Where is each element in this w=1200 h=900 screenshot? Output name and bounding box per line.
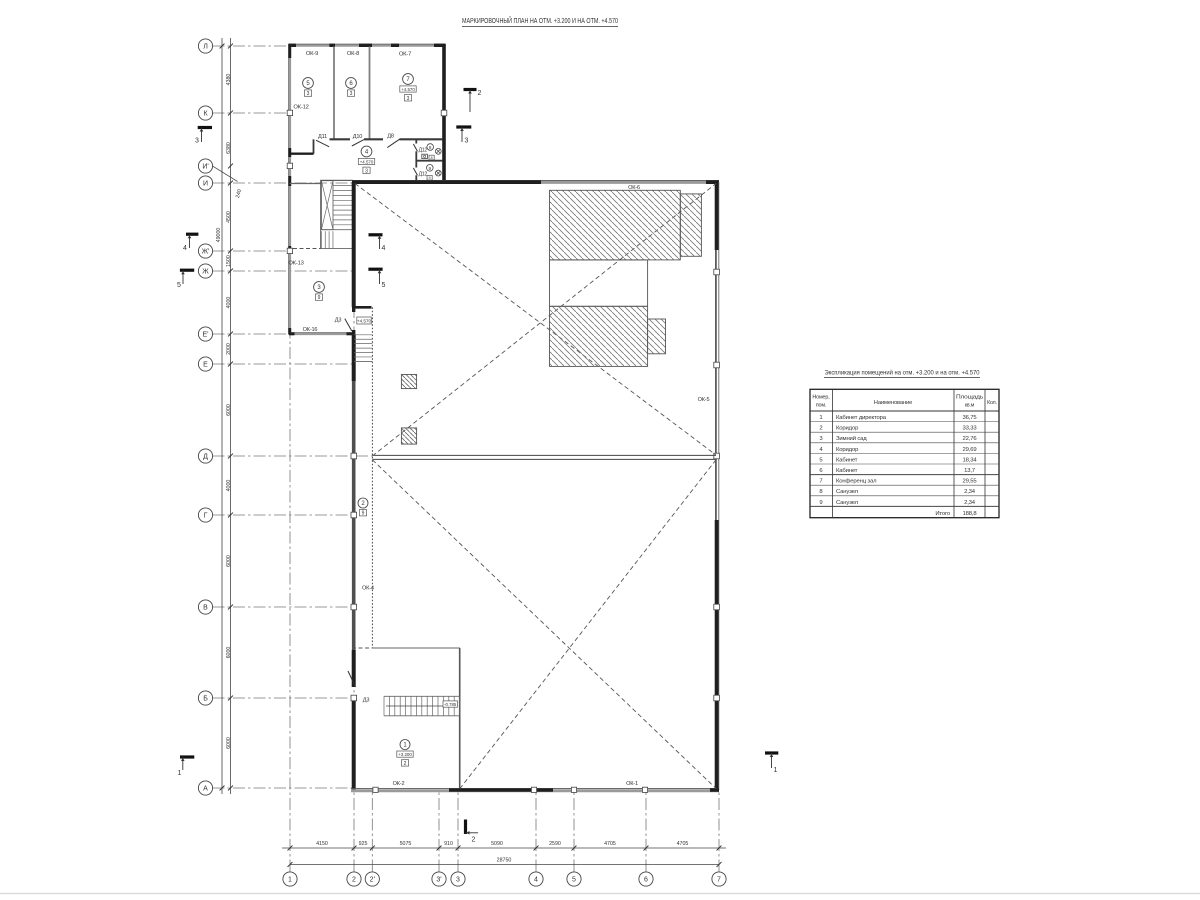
svg-text:Д11: Д11 (318, 134, 327, 140)
svg-text:Кол.: Кол. (987, 400, 997, 406)
svg-text:Коридор: Коридор (836, 426, 859, 432)
svg-text:9: 9 (819, 500, 822, 506)
svg-text:4: 4 (183, 245, 187, 252)
svg-text:Б: Б (203, 695, 208, 702)
svg-text:Коридор: Коридор (836, 447, 859, 453)
svg-text:4500: 4500 (226, 211, 232, 223)
svg-text:Кабинет: Кабинет (836, 457, 858, 463)
svg-text:2590: 2590 (549, 841, 561, 847)
svg-text:кв.м: кв.м (965, 403, 975, 409)
svg-text:Д3: Д3 (363, 698, 370, 704)
svg-text:1500: 1500 (226, 255, 232, 267)
svg-text:Наименование: Наименование (874, 400, 912, 406)
svg-text:Д8: Д8 (387, 133, 394, 139)
svg-text:9: 9 (429, 176, 431, 180)
svg-text:Экспликация помещений на отм.: Экспликация помещений на отм. +3.200 и н… (825, 369, 980, 377)
svg-text:4705: 4705 (604, 841, 616, 847)
svg-text:4: 4 (534, 876, 538, 883)
svg-text:Д: Д (203, 453, 208, 460)
svg-text:49000: 49000 (216, 228, 222, 243)
svg-text:МАРКИРОВОЧНЫЙ ПЛАН НА ОТМ. +3.: МАРКИРОВОЧНЫЙ ПЛАН НА ОТМ. +3.200 И НА О… (462, 16, 618, 25)
svg-text:2: 2 (478, 90, 482, 97)
svg-text:Кабинет: Кабинет (836, 468, 858, 474)
svg-text:4150: 4150 (316, 841, 328, 847)
svg-text:Д10: Д10 (353, 134, 362, 140)
svg-text:пом.: пом. (816, 403, 827, 409)
svg-text:+4.570: +4.570 (401, 87, 415, 92)
svg-text:6: 6 (644, 876, 648, 883)
svg-text:2: 2 (352, 876, 356, 883)
svg-text:5: 5 (177, 282, 181, 289)
svg-text:ОК-12: ОК-12 (293, 105, 308, 111)
svg-text:5090: 5090 (491, 841, 503, 847)
svg-text:2,34: 2,34 (964, 500, 976, 506)
svg-text:2: 2 (819, 426, 822, 432)
svg-text:Санузел: Санузел (836, 489, 859, 495)
svg-text:Е': Е' (202, 331, 208, 338)
svg-text:6380: 6380 (226, 142, 232, 154)
svg-text:6000: 6000 (226, 404, 232, 416)
svg-text:ОК-9: ОК-9 (306, 51, 318, 57)
svg-text:ОК-2: ОК-2 (393, 781, 405, 787)
svg-text:-0.785: -0.785 (444, 702, 457, 707)
svg-text:4000: 4000 (226, 480, 232, 492)
svg-text:2: 2 (404, 761, 407, 767)
svg-text:+4.570: +4.570 (360, 159, 374, 164)
svg-text:1: 1 (178, 770, 182, 777)
svg-text:18,34: 18,34 (963, 457, 978, 463)
svg-text:6000: 6000 (226, 737, 232, 749)
svg-text:3: 3 (350, 91, 353, 97)
svg-text:2,34: 2,34 (964, 489, 976, 495)
svg-text:28750: 28750 (497, 858, 512, 864)
svg-text:ОК-1: ОК-1 (626, 781, 638, 787)
svg-text:7: 7 (819, 479, 822, 485)
svg-text:2000: 2000 (226, 343, 232, 355)
svg-text:910: 910 (444, 841, 453, 847)
svg-text:+3.200: +3.200 (398, 752, 412, 757)
svg-text:3: 3 (365, 168, 368, 174)
svg-text:6000: 6000 (226, 555, 232, 567)
svg-text:+4.570: +4.570 (357, 319, 372, 324)
svg-text:13,7: 13,7 (964, 468, 975, 474)
svg-text:Ж': Ж' (202, 248, 210, 255)
svg-text:Д12: Д12 (419, 147, 428, 153)
svg-text:Площадь: Площадь (956, 395, 984, 401)
svg-text:7: 7 (717, 876, 721, 883)
svg-text:8: 8 (431, 156, 433, 160)
svg-text:Кабинет директора: Кабинет директора (836, 415, 887, 421)
svg-text:6000: 6000 (226, 647, 232, 659)
svg-text:ОК-13: ОК-13 (288, 261, 303, 267)
svg-text:ОК-16: ОК-16 (303, 327, 318, 333)
svg-text:33,33: 33,33 (963, 426, 978, 432)
svg-text:И': И' (202, 163, 208, 170)
svg-text:925: 925 (359, 841, 368, 847)
svg-text:5075: 5075 (400, 841, 412, 847)
svg-text:2': 2' (370, 876, 375, 883)
svg-text:2: 2 (472, 837, 476, 844)
svg-text:3: 3 (456, 876, 460, 883)
svg-text:Зимний сад: Зимний сад (836, 435, 867, 442)
svg-text:И: И (203, 180, 208, 187)
svg-text:22,76: 22,76 (963, 436, 978, 442)
svg-text:1: 1 (819, 415, 822, 421)
svg-text:1: 1 (774, 767, 778, 774)
svg-text:9: 9 (429, 166, 432, 171)
svg-text:ОК-5: ОК-5 (698, 397, 710, 403)
svg-text:3: 3 (307, 91, 310, 97)
svg-text:3: 3 (407, 96, 410, 102)
svg-text:188,8: 188,8 (963, 511, 978, 517)
svg-text:29,55: 29,55 (963, 479, 978, 485)
svg-text:Л: Л (203, 43, 208, 50)
svg-text:4380: 4380 (226, 74, 232, 86)
svg-text:1: 1 (288, 876, 292, 883)
svg-text:Санузел: Санузел (836, 500, 859, 506)
svg-text:Д3: Д3 (335, 318, 342, 324)
svg-text:Конференц зал: Конференц зал (836, 479, 877, 485)
svg-text:9: 9 (362, 511, 365, 517)
svg-text:3: 3 (195, 138, 199, 145)
svg-text:Г: Г (204, 512, 208, 519)
svg-text:29,69: 29,69 (963, 447, 977, 453)
svg-text:Ж: Ж (202, 268, 209, 275)
svg-text:5: 5 (572, 876, 576, 883)
svg-text:36,75: 36,75 (963, 415, 978, 421)
svg-text:Д12: Д12 (419, 171, 428, 177)
svg-text:Номер,: Номер, (812, 395, 830, 401)
svg-text:А: А (203, 785, 208, 792)
svg-text:5: 5 (382, 282, 386, 289)
svg-text:Итого: Итого (935, 511, 951, 517)
svg-text:8: 8 (429, 145, 432, 150)
svg-text:В: В (203, 604, 208, 611)
svg-text:9: 9 (318, 295, 321, 301)
svg-text:Е: Е (203, 361, 208, 368)
svg-text:ОК-7: ОК-7 (399, 52, 411, 58)
svg-text:3': 3' (436, 876, 441, 883)
svg-text:ОК-8: ОК-8 (347, 51, 359, 57)
svg-text:3: 3 (465, 138, 469, 145)
svg-text:4705: 4705 (677, 841, 689, 847)
svg-text:4000: 4000 (226, 297, 232, 309)
svg-text:4: 4 (382, 245, 386, 252)
